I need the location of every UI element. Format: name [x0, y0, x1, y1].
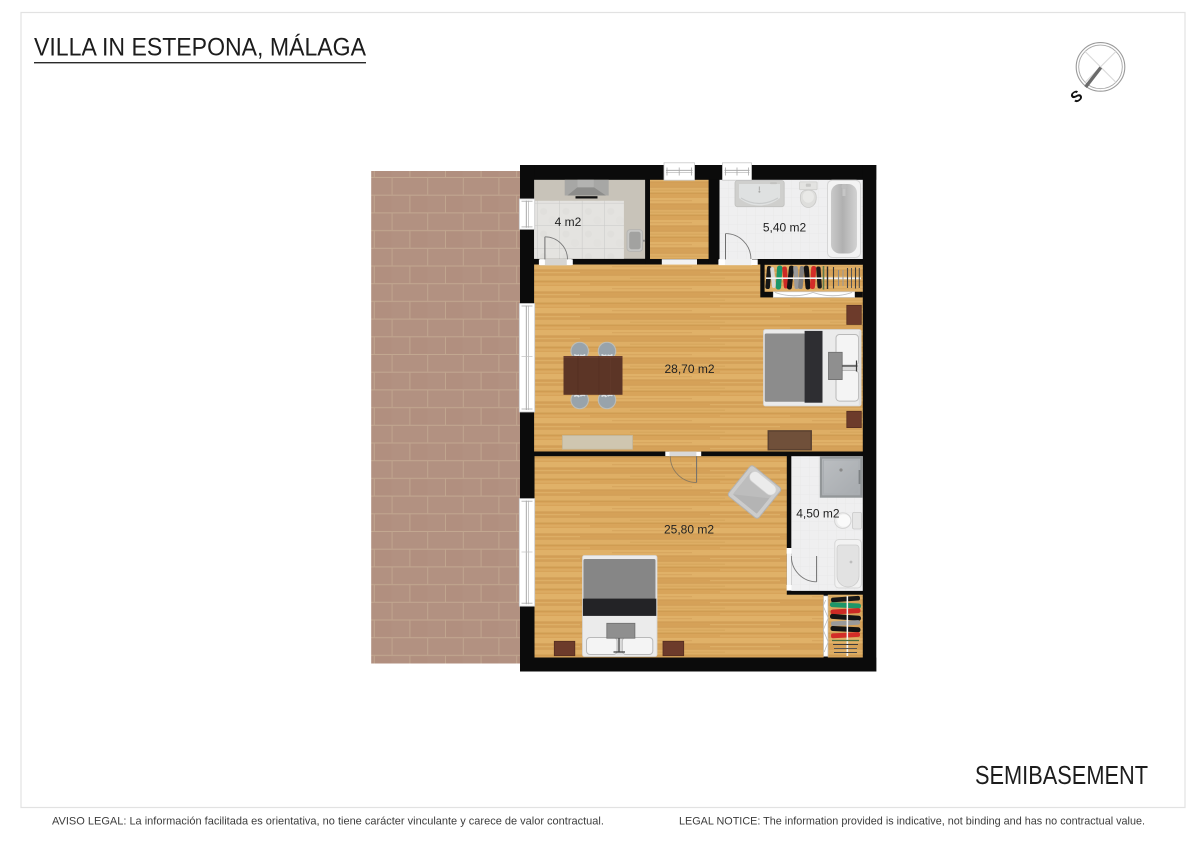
svg-text:AVISO LEGAL: La información fa: AVISO LEGAL: La información facilitada e… — [52, 816, 604, 828]
svg-text:SEMIBASEMENT: SEMIBASEMENT — [975, 762, 1148, 790]
svg-text:LEGAL NOTICE: The information: LEGAL NOTICE: The information provided i… — [679, 816, 1145, 828]
svg-text:25,80 m2: 25,80 m2 — [664, 523, 714, 537]
svg-text:5,40 m2: 5,40 m2 — [763, 221, 807, 235]
svg-text:28,70 m2: 28,70 m2 — [664, 362, 714, 376]
svg-text:4,50 m2: 4,50 m2 — [796, 507, 840, 521]
svg-text:VILLA IN ESTEPONA, MÁLAGA: VILLA IN ESTEPONA, MÁLAGA — [34, 33, 366, 62]
svg-text:4 m2: 4 m2 — [555, 215, 582, 229]
